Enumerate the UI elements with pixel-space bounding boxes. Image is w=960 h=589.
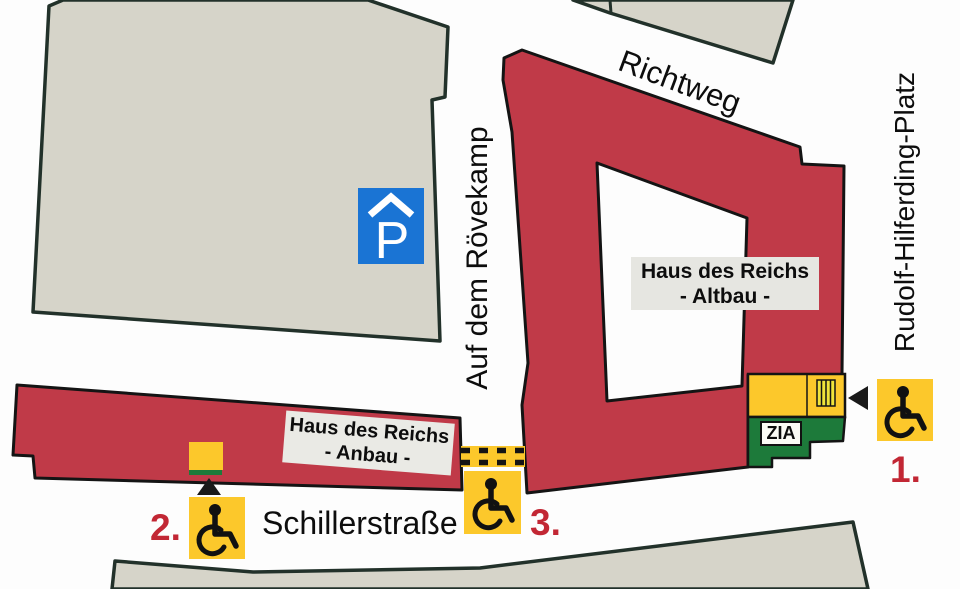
entrance2-green-strip bbox=[189, 470, 222, 475]
gray-building-northeast bbox=[573, 0, 793, 63]
site-map: P Richtweg Auf dem Rövekamp Rudolf-Hilfe… bbox=[0, 0, 960, 589]
altbau-building-label: Haus des Reichs - Altbau - bbox=[631, 257, 819, 310]
zia-label: ZIA bbox=[760, 421, 802, 446]
building-divider-line bbox=[610, 0, 611, 13]
street-label-schillerstrasse: Schillerstraße bbox=[262, 505, 458, 542]
wheelchair-badge-1 bbox=[877, 379, 933, 441]
altbau-label-line1: Haus des Reichs bbox=[631, 259, 819, 284]
entrance2-yellow-niche bbox=[189, 442, 223, 470]
entrance-marker-3: 3. bbox=[530, 502, 561, 544]
parking-garage-icon: P bbox=[358, 188, 424, 270]
street-label-rudolf-hilferding-platz: Rudolf-Hilferding-Platz bbox=[887, 52, 923, 372]
altbau-label-line2: - Altbau - bbox=[631, 284, 819, 309]
wheelchair-badge-2 bbox=[189, 497, 245, 559]
parking-letter: P bbox=[375, 212, 410, 270]
crossing-stripes bbox=[461, 446, 525, 467]
arrow-left-icon bbox=[848, 386, 868, 410]
wheelchair-badge-3 bbox=[464, 471, 521, 534]
stairs-icon bbox=[817, 380, 835, 406]
gray-building-northwest bbox=[33, 0, 448, 341]
entrance-marker-2: 2. bbox=[150, 507, 181, 549]
entrance-marker-1: 1. bbox=[890, 449, 921, 491]
street-label-auf-dem-roevekamp: Auf dem Rövekamp bbox=[460, 108, 496, 408]
